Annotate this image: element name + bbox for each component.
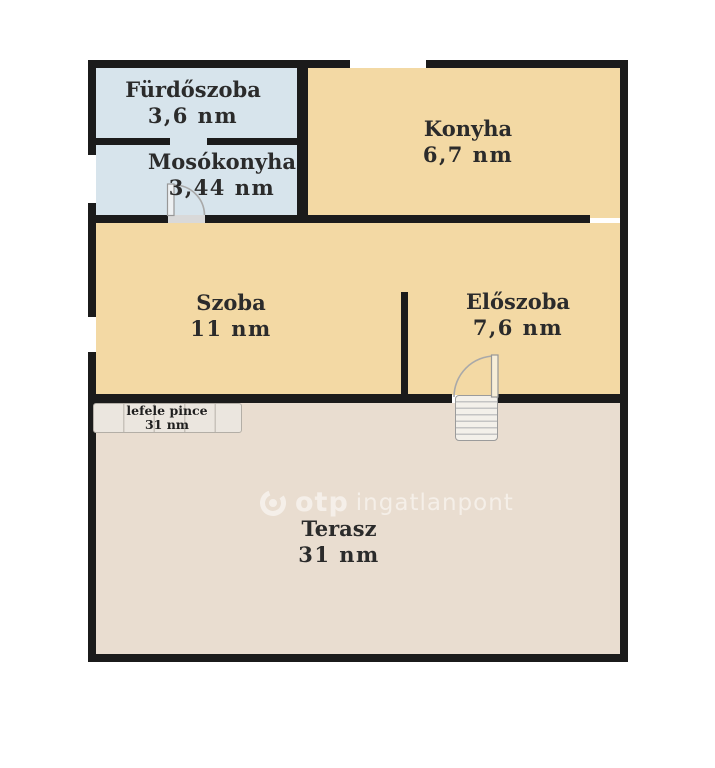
watermark: otp ingatlanpont (258, 488, 514, 518)
room-area: 6,7 nm (423, 142, 513, 168)
room-area: 31 nm (298, 542, 380, 568)
wall-band-right (205, 215, 590, 223)
floorplan-canvas: Fürdőszoba 3,6 nm Mosókonyha 3,44 nm Kon… (0, 0, 715, 768)
room-area: 3,6 nm (125, 103, 261, 129)
wall-szoba-eloszoba (401, 292, 408, 395)
room-name: Előszoba (466, 289, 570, 315)
watermark-text: ingatlanpont (356, 488, 514, 518)
room-label-furdoszoba: Fürdőszoba 3,6 nm (125, 77, 261, 129)
wall-right (620, 60, 628, 662)
room-area: 3,44 nm (148, 175, 296, 201)
wall-top-left (88, 60, 350, 68)
room-name: Mosókonyha (148, 149, 296, 175)
wall-top-right (426, 60, 628, 68)
stairs-label: lefele pince 31 nm (126, 404, 207, 432)
wall-divider-wetrooms-konyha (297, 60, 308, 223)
wall-left-upper (88, 60, 96, 155)
room-area: 11 nm (190, 316, 272, 342)
room-label-eloszoba: Előszoba 7,6 nm (466, 289, 570, 341)
wall-bottom (88, 654, 628, 662)
stairs-eloszoba-down-icon (455, 395, 498, 441)
otp-logo-icon (258, 488, 288, 518)
door-sill-mosokonyha (168, 215, 205, 223)
wall-furdoszoba-mosokonyha-right (207, 138, 297, 145)
wall-terrace-left (88, 394, 452, 403)
room-name: Terasz (298, 516, 380, 542)
room-label-szoba: Szoba 11 nm (190, 290, 272, 342)
wall-furdoszoba-mosokonyha-left (96, 138, 170, 145)
wall-band-left (88, 215, 168, 223)
room-label-terasz: Terasz 31 nm (298, 516, 380, 568)
room-name: Fürdőszoba (125, 77, 261, 103)
room-label-mosokonyha: Mosókonyha 3,44 nm (148, 149, 296, 201)
stairs-label-area: 31 nm (126, 418, 207, 432)
wall-terrace-right (498, 394, 628, 403)
stairs-label-text: lefele pince (126, 404, 207, 418)
room-label-konyha: Konyha 6,7 nm (423, 116, 513, 168)
room-area: 7,6 nm (466, 315, 570, 341)
watermark-brand: otp (295, 488, 349, 518)
room-name: Konyha (423, 116, 513, 142)
room-name: Szoba (190, 290, 272, 316)
